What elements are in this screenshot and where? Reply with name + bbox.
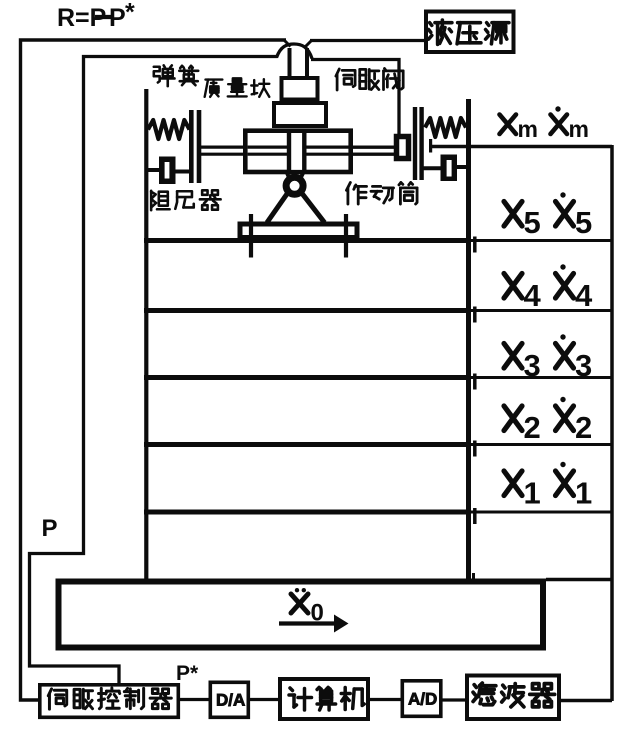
svg-text:*: * xyxy=(125,0,135,27)
svg-text:D/A: D/A xyxy=(216,691,245,710)
svg-text:P*: P* xyxy=(176,662,199,685)
svg-text:4: 4 xyxy=(575,278,593,313)
svg-text:m: m xyxy=(518,116,538,142)
svg-text:1: 1 xyxy=(524,476,541,511)
svg-text:4: 4 xyxy=(524,278,542,313)
svg-text:2: 2 xyxy=(575,410,592,445)
svg-text:5: 5 xyxy=(575,205,592,240)
svg-text:1: 1 xyxy=(575,476,592,511)
svg-text:5: 5 xyxy=(524,205,541,240)
svg-text:3: 3 xyxy=(575,348,592,383)
svg-text:A/D: A/D xyxy=(408,690,437,709)
svg-text:m: m xyxy=(569,116,589,142)
svg-text:3: 3 xyxy=(524,348,541,383)
svg-text:P: P xyxy=(42,515,58,542)
svg-text:2: 2 xyxy=(524,410,541,445)
